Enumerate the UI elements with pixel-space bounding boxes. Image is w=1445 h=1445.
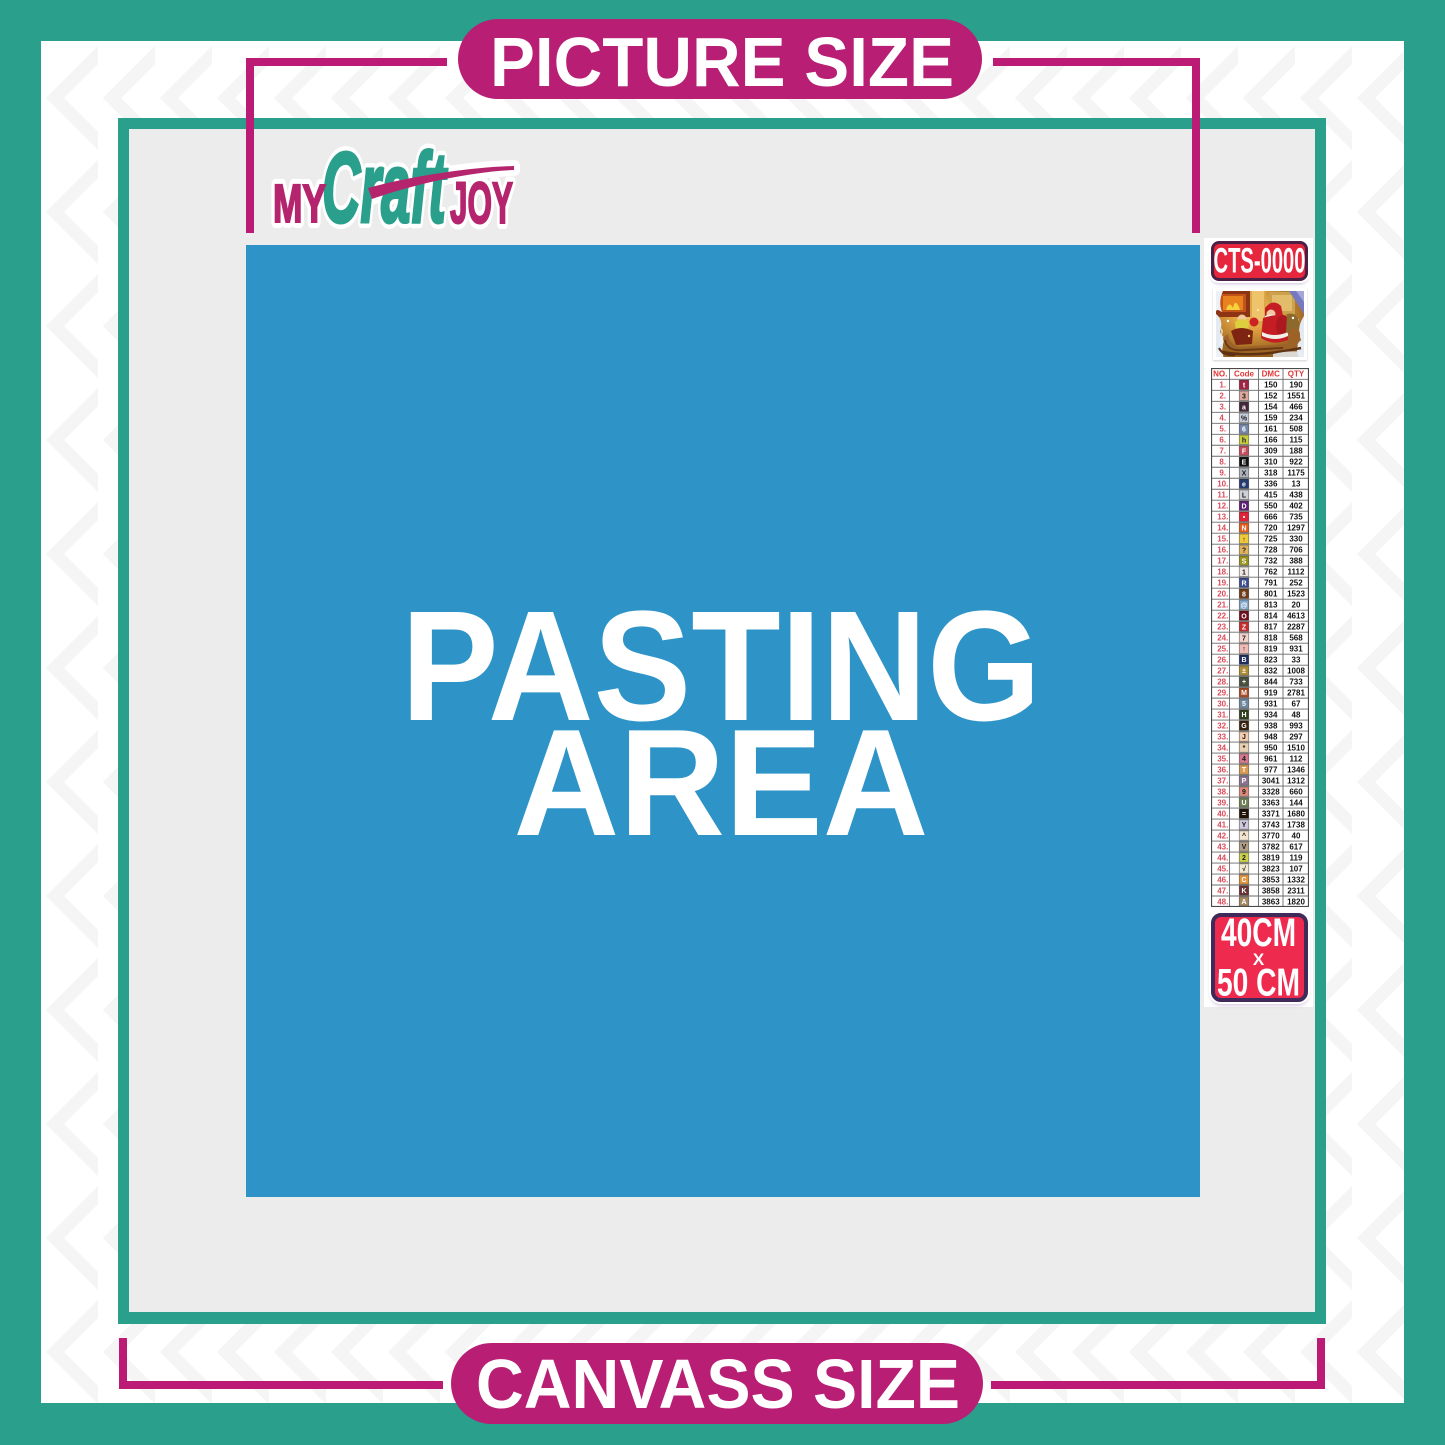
svg-text:234: 234 [1289,414,1303,423]
svg-text:3.: 3. [1219,403,1226,412]
svg-text:O: O [1241,613,1247,620]
svg-text:32.: 32. [1217,722,1228,731]
svg-text:9.: 9. [1219,469,1226,478]
svg-text:Z: Z [1242,624,1247,631]
svg-text:1510: 1510 [1287,744,1305,753]
svg-text:3041: 3041 [1262,777,1280,786]
svg-text:48.: 48. [1217,897,1228,906]
svg-text:6: 6 [1242,426,1246,433]
svg-text:47.: 47. [1217,886,1228,895]
svg-text:e: e [1242,481,1246,488]
svg-text:728: 728 [1264,546,1278,555]
svg-text:11.: 11. [1217,491,1228,500]
svg-text:3782: 3782 [1262,842,1280,851]
svg-text:309: 309 [1264,447,1278,456]
svg-text:297: 297 [1289,733,1303,742]
svg-text:948: 948 [1264,733,1278,742]
svg-text:19.: 19. [1217,579,1228,588]
svg-text:28.: 28. [1217,678,1228,687]
svg-text:3770: 3770 [1262,831,1280,840]
svg-text:17.: 17. [1217,557,1228,566]
svg-text:G: G [1241,723,1247,730]
svg-text:23.: 23. [1217,623,1228,632]
svg-text:550: 550 [1264,502,1278,511]
svg-text:1175: 1175 [1287,469,1305,478]
svg-text:7.: 7. [1219,447,1226,456]
svg-text:16.: 16. [1217,546,1228,555]
svg-text:3743: 3743 [1262,820,1280,829]
svg-text:?: ? [1242,547,1246,554]
svg-text:1346: 1346 [1287,766,1305,775]
svg-text:36.: 36. [1217,766,1228,775]
svg-text:115: 115 [1290,436,1303,445]
svg-text:1738: 1738 [1287,820,1305,829]
svg-text:8.: 8. [1219,458,1226,467]
svg-text:+: + [1242,679,1246,686]
svg-text:*: * [1243,745,1246,752]
svg-text:823: 823 [1264,656,1278,665]
svg-text:15.: 15. [1217,535,1228,544]
svg-text:154: 154 [1264,403,1278,412]
svg-text:@: @ [1241,602,1248,609]
svg-text:29.: 29. [1217,689,1228,698]
svg-text:732: 732 [1264,557,1278,566]
svg-text:37.: 37. [1217,777,1228,786]
svg-text:1312: 1312 [1287,777,1305,786]
svg-text:±: ± [1242,668,1246,675]
svg-text:33.: 33. [1217,733,1228,742]
svg-text:34.: 34. [1217,744,1228,753]
svg-text:3328: 3328 [1262,788,1280,797]
svg-text:107: 107 [1289,864,1303,873]
svg-text:1008: 1008 [1287,667,1305,676]
svg-text:10.: 10. [1217,480,1228,489]
svg-text:1: 1 [1242,569,1246,576]
svg-text:415: 415 [1264,491,1278,500]
svg-text:K: K [1241,888,1246,895]
svg-text:188: 188 [1289,447,1303,456]
svg-text:1551: 1551 [1287,392,1305,401]
svg-text:961: 961 [1264,755,1278,764]
svg-text:817: 817 [1264,623,1278,632]
svg-text:6.: 6. [1219,436,1226,445]
svg-text:7: 7 [1242,635,1246,642]
svg-text:31.: 31. [1217,711,1228,720]
svg-text:919: 919 [1264,689,1278,698]
svg-text:P: P [1242,778,1247,785]
svg-text:119: 119 [1290,853,1303,862]
svg-text:39.: 39. [1217,799,1228,808]
svg-text:N: N [1241,525,1246,532]
svg-text:934: 934 [1264,711,1278,720]
svg-text:706: 706 [1289,546,1303,555]
svg-text:2.: 2. [1219,392,1226,401]
svg-text:=: = [1242,811,1246,818]
svg-text:QTY: QTY [1288,370,1305,379]
svg-text:21.: 21. [1217,601,1228,610]
svg-text:336: 336 [1264,480,1278,489]
svg-text:993: 993 [1289,722,1303,731]
svg-text:8: 8 [1242,591,1246,598]
svg-text:MY: MY [273,174,326,234]
svg-text:24.: 24. [1217,634,1228,643]
svg-text:617: 617 [1289,842,1303,851]
svg-text:3: 3 [1242,393,1246,400]
svg-text:2: 2 [1242,855,1246,862]
svg-text:508: 508 [1289,425,1303,434]
svg-text:388: 388 [1289,557,1303,566]
svg-text:20.: 20. [1217,590,1228,599]
svg-text:159: 159 [1264,414,1278,423]
svg-text:1680: 1680 [1287,810,1305,819]
svg-text:801: 801 [1264,590,1278,599]
svg-text:1.: 1. [1219,381,1226,390]
svg-text:45.: 45. [1217,864,1228,873]
svg-text:3363: 3363 [1262,799,1280,808]
svg-text:48: 48 [1292,711,1301,720]
svg-text:40.: 40. [1217,810,1228,819]
svg-text:V: V [1242,844,1247,851]
svg-text:3863: 3863 [1262,897,1280,906]
svg-text:977: 977 [1264,766,1278,775]
svg-text:733: 733 [1289,678,1303,687]
svg-text:252: 252 [1289,579,1303,588]
svg-text:A: A [1241,899,1246,906]
svg-text:↑: ↑ [1242,646,1246,653]
svg-text:3853: 3853 [1262,875,1280,884]
svg-text:950: 950 [1264,744,1278,753]
svg-text:1523: 1523 [1287,590,1305,599]
svg-text:3858: 3858 [1262,886,1280,895]
svg-text:762: 762 [1264,568,1278,577]
svg-text:46.: 46. [1217,875,1228,884]
svg-text:4613: 4613 [1287,612,1305,621]
svg-text:152: 152 [1264,392,1278,401]
svg-text:161: 161 [1264,425,1278,434]
svg-text:2781: 2781 [1287,689,1305,698]
svg-text:B: B [1241,657,1246,664]
svg-text:R: R [1241,580,1246,587]
svg-text:√: √ [1242,865,1246,873]
svg-text:14.: 14. [1217,524,1228,533]
svg-text:22.: 22. [1217,612,1228,621]
svg-text:J: J [1242,734,1246,741]
svg-text:T: T [1242,767,1247,774]
svg-text:20: 20 [1292,601,1301,610]
svg-text:438: 438 [1289,491,1303,500]
svg-text:568: 568 [1289,634,1303,643]
svg-text:4.: 4. [1219,414,1226,423]
svg-text:D: D [1241,503,1246,510]
svg-text:X: X [1242,470,1247,477]
svg-text:166: 166 [1264,436,1278,445]
svg-text:310: 310 [1264,458,1278,467]
svg-text:44.: 44. [1217,853,1228,862]
svg-text:3371: 3371 [1262,810,1280,819]
svg-text:33: 33 [1292,656,1301,665]
svg-text:4: 4 [1242,756,1246,763]
svg-text:402: 402 [1289,502,1303,511]
svg-text:50 CM: 50 CM [1217,962,1300,999]
svg-text:AREA: AREA [514,698,929,868]
svg-text:h: h [1242,437,1246,444]
svg-text:735: 735 [1289,513,1303,522]
svg-text:814: 814 [1264,612,1278,621]
svg-text:E: E [1242,459,1247,466]
svg-text:S: S [1242,558,1247,565]
svg-text:2311: 2311 [1287,886,1305,895]
svg-text:1820: 1820 [1287,897,1305,906]
svg-text:%: % [1241,415,1248,422]
svg-text:5.: 5. [1219,425,1226,434]
svg-text:466: 466 [1289,403,1303,412]
svg-text:931: 931 [1264,700,1278,709]
svg-text:112: 112 [1290,755,1303,764]
svg-text:791: 791 [1264,579,1278,588]
svg-text:922: 922 [1289,458,1303,467]
svg-text:5: 5 [1242,701,1246,708]
svg-text:CTS-0000: CTS-0000 [1214,242,1306,281]
svg-text:18.: 18. [1217,568,1228,577]
svg-text:190: 190 [1289,381,1303,390]
svg-text:150: 150 [1264,381,1278,390]
svg-text:40: 40 [1292,831,1301,840]
svg-text:JOY: JOY [450,171,513,234]
svg-text:↑: ↑ [1242,536,1246,543]
svg-text:Craft: Craft [322,132,448,234]
svg-text:41.: 41. [1217,820,1228,829]
svg-text:^: ^ [1242,832,1246,840]
svg-text:144: 144 [1289,799,1303,808]
svg-text:1332: 1332 [1287,875,1305,884]
svg-text:666: 666 [1264,513,1278,522]
svg-text:30.: 30. [1217,700,1228,709]
svg-text:26.: 26. [1217,656,1228,665]
svg-text:U: U [1241,800,1246,807]
svg-text:38.: 38. [1217,788,1228,797]
svg-text:DMC: DMC [1262,370,1280,379]
svg-text:27.: 27. [1217,667,1228,676]
svg-text:725: 725 [1264,535,1278,544]
svg-text:931: 931 [1289,645,1303,654]
svg-text:1112: 1112 [1288,568,1305,577]
svg-text:2287: 2287 [1287,623,1305,632]
svg-text:3823: 3823 [1262,864,1280,873]
svg-text:819: 819 [1264,645,1278,654]
svg-text:CANVASS SIZE: CANVASS SIZE [476,1345,960,1423]
svg-text:720: 720 [1264,524,1278,533]
svg-text:660: 660 [1289,788,1303,797]
svg-text:M: M [1241,690,1247,697]
svg-text:35.: 35. [1217,755,1228,764]
svg-text:a: a [1242,404,1246,411]
svg-text:13: 13 [1292,480,1301,489]
svg-text:25.: 25. [1217,645,1228,654]
svg-text:F: F [1242,448,1247,455]
svg-text:67: 67 [1292,700,1301,709]
svg-text:Code: Code [1234,370,1255,379]
svg-text:Y: Y [1242,822,1247,829]
svg-text:13.: 13. [1217,513,1228,522]
svg-text:813: 813 [1264,601,1278,610]
svg-text:42.: 42. [1217,831,1228,840]
svg-text:1297: 1297 [1287,524,1305,533]
svg-text:844: 844 [1264,678,1278,687]
svg-text:PICTURE SIZE: PICTURE SIZE [490,23,954,99]
svg-text:H: H [1241,712,1246,719]
svg-text:938: 938 [1264,722,1278,731]
svg-text:12.: 12. [1217,502,1228,511]
svg-text:43.: 43. [1217,842,1228,851]
svg-text:818: 818 [1264,634,1278,643]
svg-text:9: 9 [1242,789,1246,796]
svg-text:L: L [1242,492,1247,499]
svg-text:NO.: NO. [1213,370,1227,379]
svg-text:3819: 3819 [1262,853,1280,862]
svg-text:318: 318 [1264,469,1278,478]
svg-text:C: C [1241,877,1246,884]
svg-text:330: 330 [1289,535,1303,544]
svg-text:832: 832 [1264,667,1278,676]
